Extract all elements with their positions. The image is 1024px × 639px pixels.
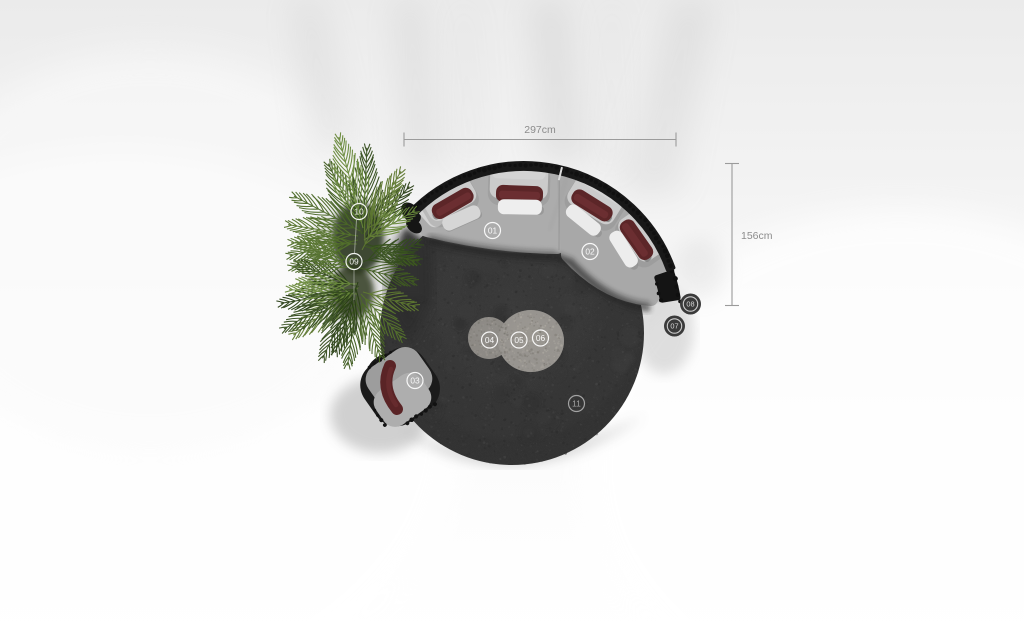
svg-text:156cm: 156cm	[741, 230, 773, 242]
svg-text:03: 03	[410, 376, 420, 386]
svg-text:02: 02	[585, 247, 595, 257]
svg-text:297cm: 297cm	[524, 124, 556, 136]
svg-text:10: 10	[354, 207, 364, 217]
svg-text:08: 08	[686, 300, 694, 309]
svg-text:04: 04	[485, 335, 495, 345]
svg-text:01: 01	[488, 226, 498, 236]
svg-text:06: 06	[536, 333, 546, 343]
svg-text:07: 07	[670, 322, 678, 331]
svg-text:05: 05	[514, 335, 524, 345]
svg-text:11: 11	[572, 399, 581, 409]
svg-text:09: 09	[349, 257, 359, 267]
